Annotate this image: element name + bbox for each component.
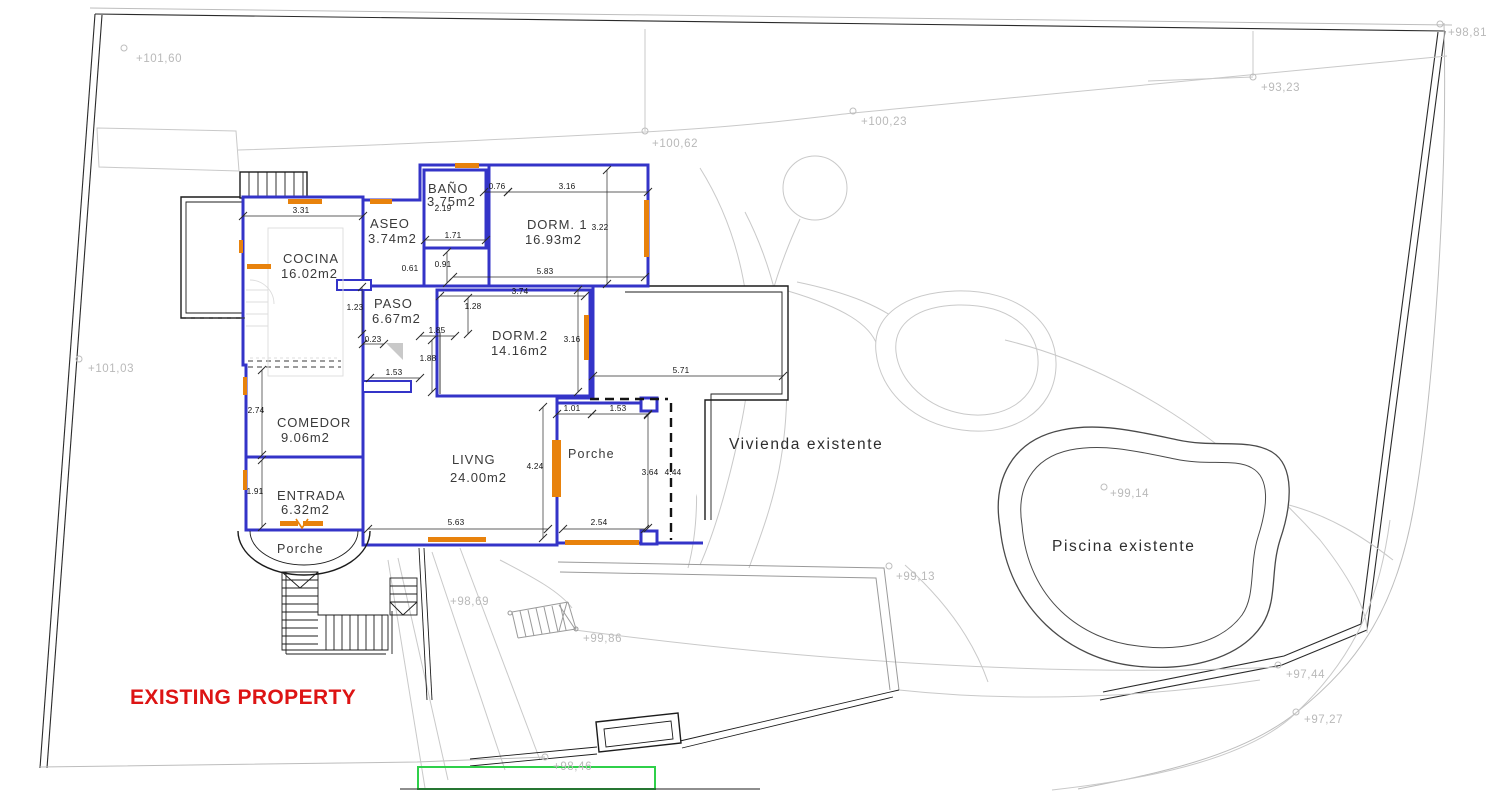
- elevation-97-44: +97,44: [1286, 669, 1325, 681]
- dim-bano-door: 0.76: [489, 182, 506, 191]
- room-label-livng: LIVNG: [452, 452, 496, 467]
- dim-porch-height-b: 4.44: [665, 468, 682, 477]
- dim-dorm2-c: 1.88: [420, 354, 437, 363]
- plan-canvas: 3.31 0.76 3.16 2.19 3.22 1.71 0.91 0.61 …: [0, 0, 1487, 791]
- dim-aseo-door: 0.61: [402, 264, 419, 273]
- dim-paso-a: 0.91: [435, 260, 452, 269]
- dim-dorm1-width: 3.16: [559, 182, 576, 191]
- dim-dorm1-bottom: 5.83: [537, 267, 554, 276]
- dim-entrada-height: 1.91: [247, 487, 264, 496]
- gate-structure: [596, 713, 681, 752]
- elevation-93-23: +93,23: [1261, 82, 1300, 94]
- room-label-dorm2: DORM.2: [492, 328, 548, 343]
- room-area-dorm2: 14.16m2: [491, 343, 548, 358]
- elevation-99-14: +99,14: [1110, 488, 1149, 500]
- vivienda-existente-label: Vivienda existente: [729, 436, 883, 453]
- dim-cocina-width: 3.31: [293, 206, 310, 215]
- room-area-entrada: 6.32m2: [281, 502, 330, 517]
- porch-front-label: Porche: [277, 542, 324, 556]
- dim-dorm2-b: 1.85: [429, 326, 446, 335]
- dim-porch-width: 2.54: [591, 518, 608, 527]
- porch-front-steps: [238, 531, 417, 654]
- elevation-100-23: +100,23: [861, 116, 907, 128]
- room-label-cocina: COCINA: [283, 251, 339, 266]
- green-boundary-rect: [418, 767, 655, 789]
- building-existing: [181, 163, 788, 654]
- room-label-comedor: COMEDOR: [277, 415, 351, 430]
- elevation-97-27: +97,27: [1304, 714, 1343, 726]
- dim-porch-a: 1.01: [564, 404, 581, 413]
- dim-paso-c: 0.23: [365, 335, 382, 344]
- dim-paso-b: 1.23: [347, 303, 364, 312]
- dim-bano-width: 1.71: [445, 231, 462, 240]
- existing-property-annotation: EXISTING PROPERTY: [130, 686, 356, 709]
- porch-pillar-bottom: [641, 531, 657, 544]
- elevation-98-69: +98,69: [450, 596, 489, 608]
- dim-dorm1-height: 3.22: [592, 223, 609, 232]
- dim-porch-height-a: 3.64: [642, 468, 659, 477]
- dim-comedor-height: 2.74: [248, 406, 265, 415]
- dim-terrace-width: 5.71: [673, 366, 690, 375]
- terrace-left: [181, 197, 243, 318]
- elevation-99-86: +99,86: [583, 633, 622, 645]
- room-area-dorm1: 16.93m2: [525, 232, 582, 247]
- floor-plan-svg: 3.31 0.76 3.16 2.19 3.22 1.71 0.91 0.61 …: [0, 0, 1487, 791]
- garden-stairs: [508, 602, 578, 638]
- piscina-existente-label: Piscina existente: [1052, 538, 1196, 555]
- dim-livng-width: 5.63: [448, 518, 465, 527]
- dim-livng-height: 4.24: [527, 462, 544, 471]
- dim-porch-b: 1.53: [610, 404, 627, 413]
- elevation-101-03: +101,03: [88, 363, 134, 375]
- room-label-aseo: ASEO: [370, 216, 410, 231]
- room-label-entrada: ENTRADA: [277, 488, 345, 503]
- elevation-98-46: +98,46: [553, 761, 592, 773]
- hardscape: [400, 548, 899, 789]
- room-label-paso: PASO: [374, 296, 413, 311]
- elevation-98-81: +98,81: [1448, 27, 1487, 39]
- dim-dorm2-a: 1.28: [465, 302, 482, 311]
- room-area-comedor: 9.06m2: [281, 430, 330, 445]
- room-area-bano: 3.75m2: [427, 194, 476, 209]
- room-area-paso: 6.67m2: [372, 311, 421, 326]
- dim-livng-top: 1.53: [386, 368, 403, 377]
- dim-dorm2-width: 3.74: [512, 287, 529, 296]
- elevation-99-13: +99,13: [896, 571, 935, 583]
- elevation-100-62: +100,62: [652, 138, 698, 150]
- room-area-cocina: 16.02m2: [281, 266, 338, 281]
- porch-side-label: Porche: [568, 447, 615, 461]
- room-label-dorm1: DORM. 1: [527, 217, 587, 232]
- stairs-top: [240, 172, 307, 198]
- room-area-livng: 24.00m2: [450, 470, 507, 485]
- elevation-101-60: +101,60: [136, 53, 182, 65]
- room-area-aseo: 3.74m2: [368, 231, 417, 246]
- dim-dorm2-height: 3.16: [564, 335, 581, 344]
